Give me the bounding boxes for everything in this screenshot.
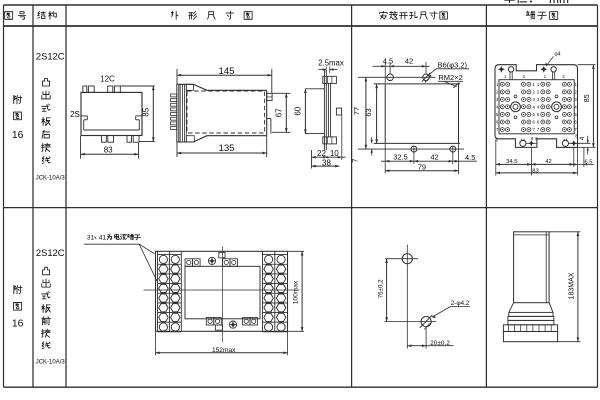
svg-text:85: 85 — [141, 107, 150, 116]
svg-text:22: 22 — [317, 149, 326, 158]
svg-text:34.5: 34.5 — [506, 159, 517, 165]
svg-text:2S12C: 2S12C — [36, 247, 65, 258]
svg-text:JCK-10A/3: JCK-10A/3 — [36, 360, 66, 366]
svg-text:76±0.2: 76±0.2 — [377, 279, 384, 298]
svg-text:60: 60 — [294, 106, 303, 115]
svg-text:42: 42 — [405, 57, 413, 66]
svg-text:2-φ4.2: 2-φ4.2 — [451, 300, 470, 307]
svg-text:83: 83 — [532, 168, 538, 174]
svg-text:63: 63 — [364, 108, 373, 116]
svg-text:145: 145 — [218, 66, 234, 77]
svg-text:32.5: 32.5 — [393, 153, 408, 162]
svg-text:83: 83 — [104, 146, 113, 155]
svg-text:B6(φ3.2): B6(φ3.2) — [438, 60, 468, 69]
svg-text:77: 77 — [352, 107, 361, 115]
svg-text:12C: 12C — [100, 75, 115, 84]
svg-text:41: 41 — [99, 235, 107, 242]
svg-text:JCK-10A/3: JCK-10A/3 — [36, 176, 66, 182]
svg-text:φ4: φ4 — [554, 51, 560, 57]
svg-text:135: 135 — [218, 143, 234, 154]
svg-text:42: 42 — [430, 153, 438, 162]
svg-text:4.5: 4.5 — [465, 153, 475, 162]
svg-text:6.5: 6.5 — [584, 159, 592, 165]
svg-text:4.5: 4.5 — [383, 57, 393, 66]
svg-text:2.5max: 2.5max — [318, 58, 344, 67]
svg-text:20±0.2: 20±0.2 — [430, 340, 450, 347]
svg-text:10: 10 — [330, 149, 339, 158]
svg-text:67: 67 — [275, 108, 284, 117]
svg-text:31: 31 — [87, 235, 95, 242]
svg-text:183MAX: 183MAX — [569, 272, 576, 299]
svg-text:RM2×2: RM2×2 — [438, 73, 462, 82]
svg-text:38: 38 — [322, 159, 331, 168]
svg-text:152max: 152max — [212, 347, 236, 354]
svg-text:7: 7 — [350, 159, 359, 163]
svg-text:16: 16 — [12, 318, 24, 329]
svg-text:42: 42 — [545, 159, 551, 165]
svg-text:100max: 100max — [293, 280, 300, 304]
svg-text:16: 16 — [12, 130, 24, 141]
svg-text:85: 85 — [584, 94, 591, 102]
svg-text:2S12C: 2S12C — [36, 50, 65, 61]
svg-text:79: 79 — [418, 163, 426, 172]
svg-text:2S: 2S — [70, 110, 80, 119]
